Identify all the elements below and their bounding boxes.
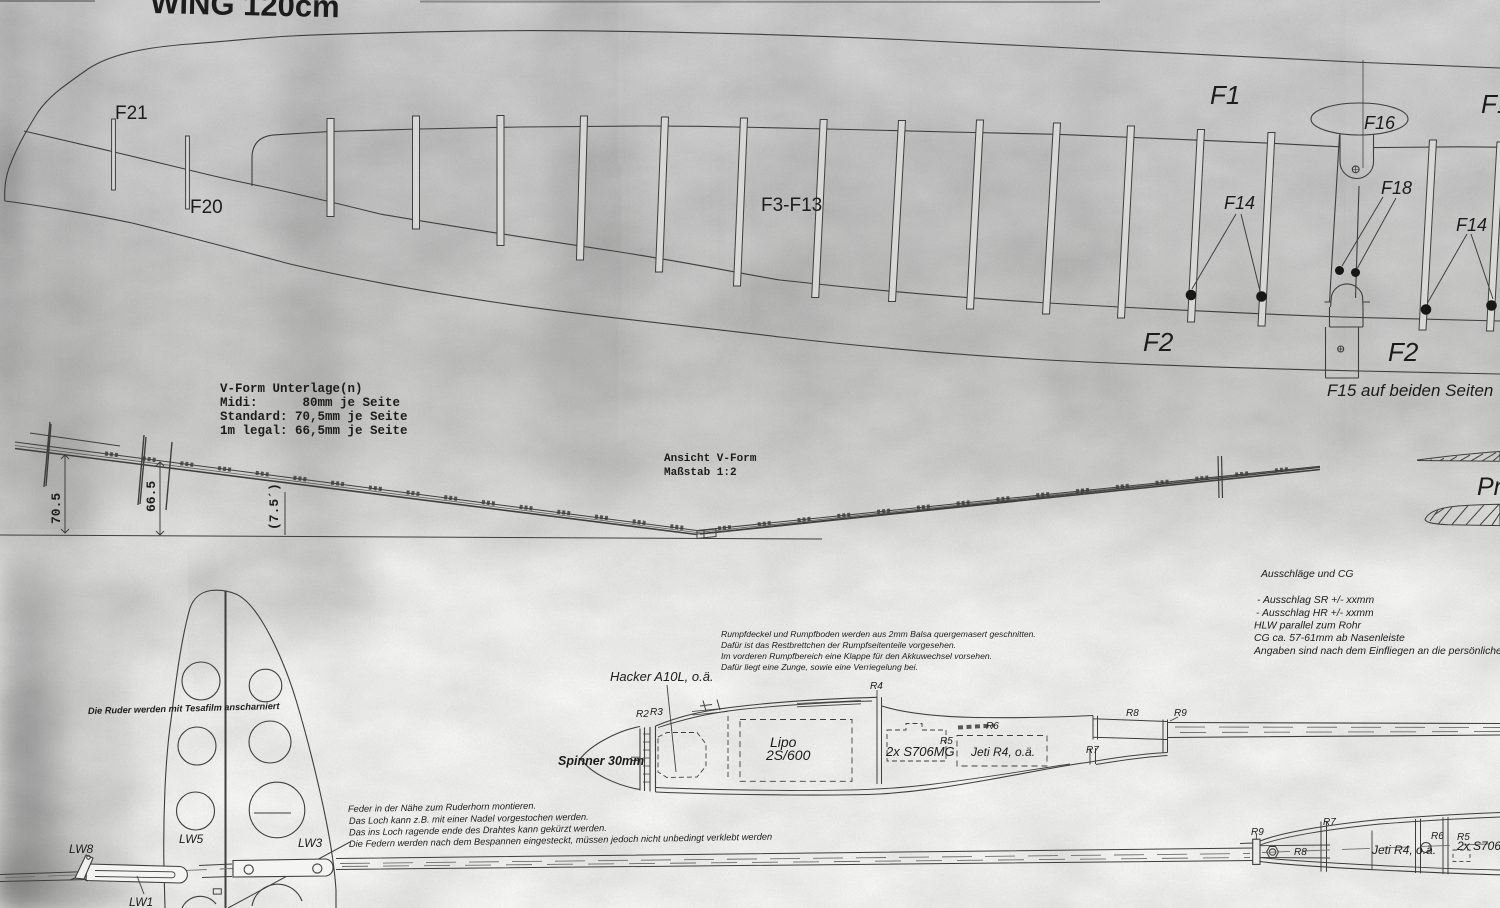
svg-text:F2: F2 — [1143, 327, 1174, 357]
svg-text:2x S706M: 2x S706M — [1456, 839, 1500, 853]
svg-text:R3: R3 — [650, 707, 663, 718]
svg-text:R8: R8 — [1294, 847, 1307, 858]
svg-text:66.5: 66.5 — [144, 481, 159, 512]
svg-text:- Ausschlag SR +/- xxmm: - Ausschlag SR +/- xxmm — [1257, 595, 1374, 606]
svg-text:70.5: 70.5 — [49, 493, 64, 524]
svg-text:Spinner 30mm: Spinner 30mm — [558, 754, 644, 768]
svg-text:LW3: LW3 — [298, 836, 323, 850]
svg-text:Dafür liegt eine Zunge, sowie: Dafür liegt eine Zunge, sowie eine Verri… — [721, 662, 918, 672]
svg-text:R6: R6 — [1431, 831, 1444, 842]
svg-text:Jeti R4, o.ä.: Jeti R4, o.ä. — [970, 745, 1035, 759]
svg-text:HLW parallel zum Rohr: HLW parallel zum Rohr — [1254, 621, 1362, 632]
svg-text:R9: R9 — [1174, 708, 1187, 719]
svg-text:R7: R7 — [1323, 817, 1336, 828]
svg-text:F15 auf beiden Seiten: F15 auf beiden Seiten — [1327, 381, 1493, 400]
svg-text:- Ausschlag HR +/- xxmm: - Ausschlag HR +/- xxmm — [1256, 608, 1374, 619]
svg-text:2x S706MG: 2x S706MG — [885, 744, 955, 759]
svg-text:R9: R9 — [1251, 827, 1264, 838]
svg-text:F16: F16 — [1364, 113, 1396, 133]
svg-text:R4: R4 — [870, 681, 883, 692]
svg-text:Ansicht V-Form: Ansicht V-Form — [664, 453, 757, 465]
svg-text:LW8: LW8 — [69, 842, 94, 856]
svg-text:R2: R2 — [636, 709, 649, 720]
svg-text:R6: R6 — [986, 721, 999, 732]
svg-text:F1: F1 — [1210, 80, 1240, 110]
svg-text:F21: F21 — [115, 103, 148, 124]
svg-text:F3-F13: F3-F13 — [761, 195, 822, 216]
svg-text:F2: F2 — [1388, 337, 1419, 367]
svg-text:R7: R7 — [1086, 745, 1099, 756]
svg-text:Angaben sind nach dem Einflieg: Angaben sind nach dem Einfliegen an die … — [1253, 646, 1500, 657]
svg-text:Pr: Pr — [1477, 473, 1500, 501]
svg-text:Maßstab 1:2: Maßstab 1:2 — [664, 467, 737, 479]
svg-text:Jeti R4, o.ä.: Jeti R4, o.ä. — [1371, 843, 1436, 857]
svg-text:2S/600: 2S/600 — [765, 747, 811, 763]
svg-text:F20: F20 — [190, 197, 223, 218]
svg-text:F14: F14 — [1456, 215, 1487, 235]
svg-text:1m legal: 66,5mm je Seite: 1m legal: 66,5mm je Seite — [220, 424, 408, 438]
svg-text:(7.5´): (7.5´) — [267, 483, 282, 530]
svg-text:CG ca. 57-61mm ab Nasenleiste: CG ca. 57-61mm ab Nasenleiste — [1254, 633, 1405, 644]
svg-text:R8: R8 — [1126, 708, 1139, 719]
svg-text:LW1: LW1 — [129, 895, 153, 908]
svg-text:Midi: 80mm je Seite: Midi: 80mm je Seite — [220, 396, 400, 410]
svg-text:V-Form Unterlage(n): V-Form Unterlage(n) — [220, 382, 363, 396]
svg-text:Im vorderen Rumpfbereich eine: Im vorderen Rumpfbereich eine Klappe für… — [721, 651, 992, 661]
svg-text:F1: F1 — [1481, 89, 1500, 119]
svg-text:LW5: LW5 — [179, 832, 204, 846]
svg-text:Rumpfdeckel und Rumpfboden wer: Rumpfdeckel und Rumpfboden werden aus 2m… — [721, 629, 1036, 639]
svg-text:F18: F18 — [1381, 178, 1412, 198]
svg-text:Hacker A10L, o.ä.: Hacker A10L, o.ä. — [610, 669, 714, 684]
svg-text:F14: F14 — [1224, 193, 1255, 213]
svg-text:Standard: 70,5mm je Seite: Standard: 70,5mm je Seite — [220, 410, 408, 424]
svg-text:Dafür ist das Restbrettchen de: Dafür ist das Restbrettchen der Rumpfsei… — [721, 640, 956, 650]
svg-text:Ausschläge und CG: Ausschläge und CG — [1260, 569, 1353, 580]
